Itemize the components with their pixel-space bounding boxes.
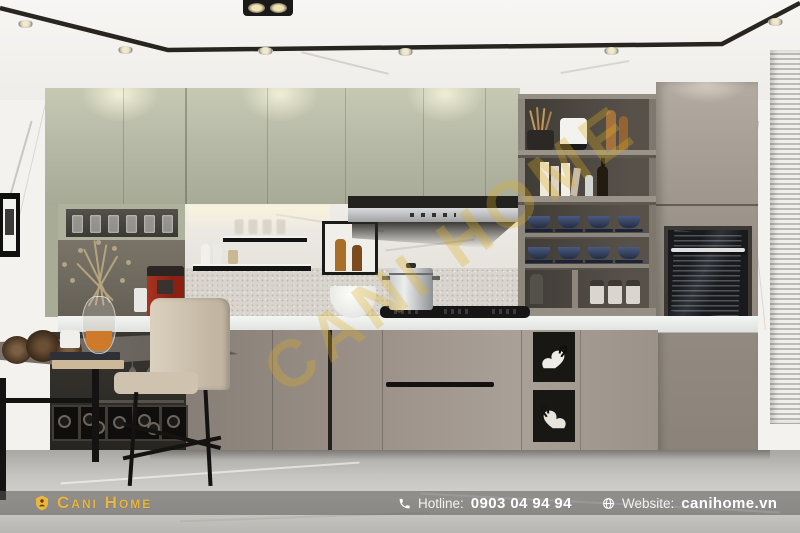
spice-jar xyxy=(626,280,640,304)
ceiling-trim xyxy=(0,0,800,72)
website-label: Website: xyxy=(622,496,674,511)
coffee-machine-head xyxy=(157,280,173,294)
wall-outlet xyxy=(134,288,147,312)
drinking-glass xyxy=(72,215,83,233)
cabinet-door-seam xyxy=(267,88,268,205)
plant-foliage xyxy=(112,246,117,251)
globe-icon xyxy=(602,497,615,510)
oven-handle xyxy=(671,248,745,252)
burner-grate xyxy=(492,309,518,314)
storage-jar xyxy=(234,219,244,235)
vase-contents-orange xyxy=(86,331,112,351)
swan-sculpture xyxy=(537,398,571,438)
coffee-machine-top xyxy=(147,266,184,276)
window-blinds xyxy=(770,50,800,424)
drinking-glass xyxy=(162,215,173,233)
logo-group: Cani Home xyxy=(34,491,152,515)
white-bottle xyxy=(213,244,222,264)
table-stretcher xyxy=(0,398,98,403)
downlight xyxy=(258,47,273,55)
under-cabinet-light-glow xyxy=(188,205,330,231)
cabinet-door-seam xyxy=(123,88,124,205)
storage-jar xyxy=(276,219,286,235)
decor-niche xyxy=(533,390,575,442)
table-leg xyxy=(92,362,99,462)
drinking-glass xyxy=(126,215,137,233)
logo-shield-icon xyxy=(34,495,50,511)
niche-opening xyxy=(66,209,178,237)
phone-icon xyxy=(398,497,411,510)
logo-text: Cani Home xyxy=(57,493,152,513)
saucer xyxy=(585,229,613,232)
book-stack xyxy=(50,352,124,370)
white-bottle xyxy=(201,244,210,264)
cabinet-side-panel xyxy=(45,205,58,317)
dark-bottle xyxy=(547,280,558,304)
marble-vein xyxy=(19,101,47,218)
decor-niche xyxy=(533,332,575,382)
downlight xyxy=(18,20,33,28)
drinking-glass xyxy=(144,215,155,233)
book xyxy=(50,352,120,360)
swan-sculpture xyxy=(537,338,571,378)
plant-foliage xyxy=(126,260,131,265)
table-leg xyxy=(0,378,6,500)
white-jug xyxy=(60,330,80,348)
shelf-board xyxy=(525,264,649,270)
cabinet-seam xyxy=(656,204,758,206)
storage-jar xyxy=(262,219,272,235)
footer-brand-bar: Cani Home Hotline: 0903 04 94 94 Website… xyxy=(0,491,800,515)
downlight xyxy=(768,18,783,26)
saucer xyxy=(615,229,643,232)
drawer-handle-groove xyxy=(386,382,494,387)
floating-shelf-lower xyxy=(193,264,311,271)
website-group: Website: canihome.vn xyxy=(602,491,777,515)
bar-chair-seat xyxy=(114,372,198,394)
glass-vase xyxy=(82,296,116,354)
website-domain: canihome.vn xyxy=(681,495,777,512)
small-jar xyxy=(228,250,238,264)
downlight xyxy=(118,46,133,54)
wall-art-frame xyxy=(0,193,20,257)
spot-light xyxy=(270,3,287,13)
kitchen-showroom-photo: CANI HOME Cani Home Hotline: 0903 04 94 … xyxy=(0,0,800,533)
base-door-seam xyxy=(580,330,581,454)
saucer xyxy=(585,260,613,263)
plant-foliage xyxy=(78,248,83,253)
spice-jar xyxy=(590,280,604,304)
drinking-glass xyxy=(108,215,119,233)
wine-cubby xyxy=(52,405,80,441)
spot-light xyxy=(248,3,265,13)
built-in-oven xyxy=(664,226,752,330)
saucer xyxy=(555,260,583,263)
plant-foliage xyxy=(120,278,125,283)
plant-foliage xyxy=(70,278,75,283)
saucer xyxy=(615,260,643,263)
wine-bottle-end xyxy=(167,415,180,428)
plant-foliage xyxy=(96,240,101,245)
oven-glass xyxy=(668,230,748,318)
oven-glass-blind-reflection xyxy=(668,230,748,318)
storage-jar xyxy=(248,219,258,235)
wall-art-print xyxy=(5,209,14,235)
book xyxy=(52,360,124,369)
spice-jar xyxy=(608,280,622,304)
hotline-group: Hotline: 0903 04 94 94 xyxy=(398,491,572,515)
floor-contact-shadow xyxy=(150,450,770,460)
hotline-number: 0903 04 94 94 xyxy=(471,495,572,512)
cabinet-door-seam xyxy=(185,88,187,205)
floating-shelf-upper xyxy=(223,236,307,242)
wine-cubby xyxy=(133,405,161,441)
cabinet-door-seam xyxy=(345,88,346,205)
cabinet-door-seam xyxy=(423,88,424,205)
downlight xyxy=(604,47,619,55)
wine-bottle-end xyxy=(58,415,71,428)
ceiling-spot-fixture xyxy=(243,0,293,16)
plant-foliage xyxy=(62,262,67,267)
base-door-seam xyxy=(521,330,522,454)
downlight xyxy=(398,48,413,56)
dark-bottle xyxy=(530,274,543,304)
hotline-label: Hotline: xyxy=(418,496,464,511)
drinking-glass xyxy=(90,215,101,233)
coffee-niche-shelf xyxy=(58,204,186,240)
shelf-divider xyxy=(572,270,578,310)
